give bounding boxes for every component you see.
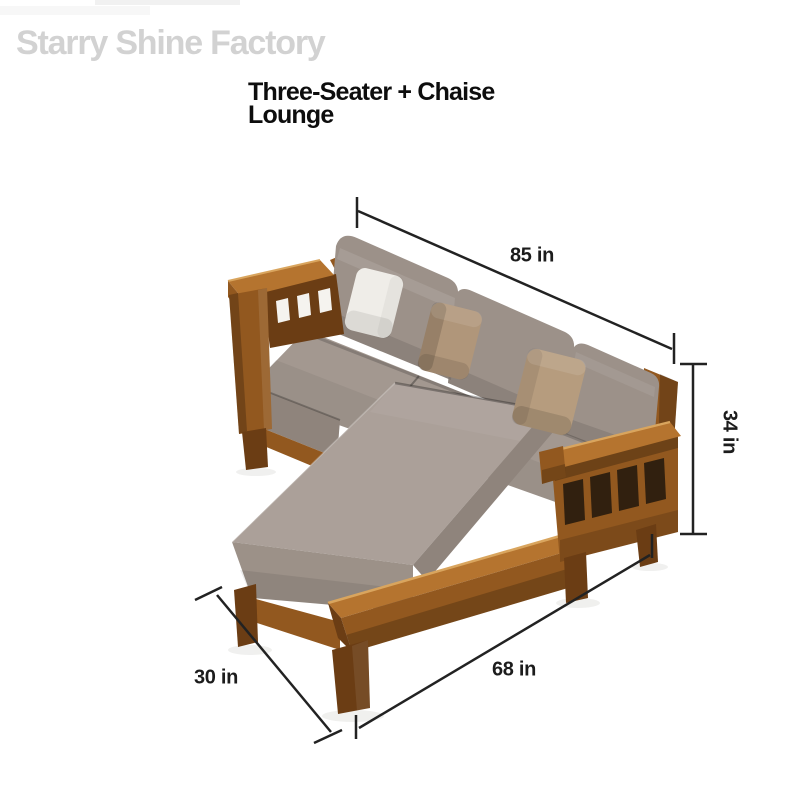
dimension-tick: [314, 730, 342, 743]
arm-slat-opening: [276, 298, 290, 323]
product-dimension-image: Starry Shine Factory Three-Seater + Chai…: [0, 0, 800, 800]
shelf-cubby: [617, 465, 639, 511]
label-back-height: 34 in: [718, 410, 741, 454]
arm-slat-opening: [318, 288, 332, 313]
shelf-cubby: [563, 479, 585, 525]
label-chaise-depth: 30 in: [194, 667, 238, 690]
dimension-line-34: [680, 364, 707, 534]
arm-front-leg: [242, 428, 268, 470]
sofa-illustration: [0, 0, 800, 800]
chaise-front-leg: [234, 584, 258, 647]
shelf-cubby: [590, 472, 612, 518]
arm-slat-opening: [297, 293, 311, 318]
label-front-length: 68 in: [492, 659, 536, 682]
label-back-width: 85 in: [510, 245, 554, 268]
chaise-wood-rail: [252, 598, 340, 650]
shelf-cubby: [644, 458, 666, 504]
